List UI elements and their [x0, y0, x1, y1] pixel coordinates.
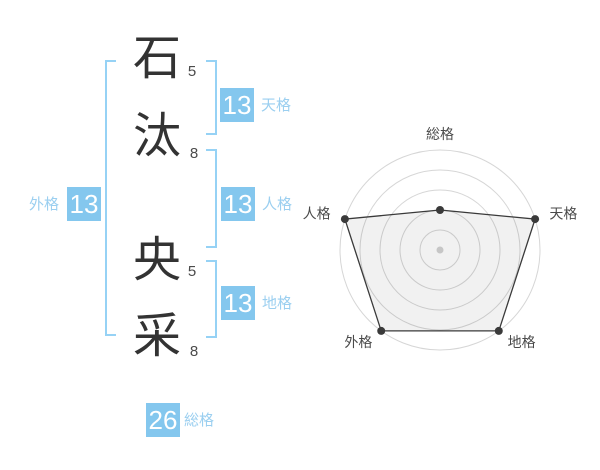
radar-chart: 総格天格地格外格人格: [290, 95, 600, 385]
name-char-1: 石: [131, 35, 183, 83]
gaikaku-bracket: [105, 60, 116, 336]
radar-data-point: [436, 206, 444, 214]
chikaku-bracket: [206, 260, 217, 338]
radar-axis-label: 総格: [426, 126, 454, 142]
jinkaku-label: 人格: [262, 197, 292, 212]
radar-axis-label: 地格: [508, 334, 536, 350]
radar-data-point: [341, 215, 349, 223]
radar-data-point: [495, 327, 503, 335]
name-char-2: 汰: [131, 113, 183, 161]
tenkaku-value-badge: 13: [220, 88, 254, 122]
soukaku-value-badge: 26: [146, 403, 180, 437]
stroke-count-2: 8: [187, 146, 201, 161]
name-analysis-panel: 石 汰 央 采 5 8 5 8 13 天格 13 人格 13 地格 外格 13 …: [0, 0, 600, 470]
stroke-count-1: 5: [185, 64, 199, 79]
radar-center-dot: [437, 247, 444, 254]
stroke-count-4: 8: [187, 344, 201, 359]
radar-axis-label: 外格: [344, 334, 372, 350]
radar-data-polygon: [345, 210, 535, 331]
stroke-count-3: 5: [185, 264, 199, 279]
gaikaku-label: 外格: [29, 197, 59, 212]
name-char-3: 央: [131, 237, 183, 285]
tenkaku-label: 天格: [261, 98, 291, 113]
gaikaku-value-badge: 13: [67, 187, 101, 221]
jinkaku-bracket: [206, 149, 217, 248]
radar-data-point: [377, 327, 385, 335]
radar-axis-label: 人格: [303, 206, 331, 222]
jinkaku-value-badge: 13: [221, 187, 255, 221]
soukaku-label: 総格: [184, 413, 214, 428]
name-char-4: 采: [131, 313, 183, 361]
chikaku-value-badge: 13: [221, 286, 255, 320]
tenkaku-bracket: [206, 60, 217, 135]
radar-data-point: [531, 215, 539, 223]
radar-axis-label: 天格: [549, 206, 577, 222]
chikaku-label: 地格: [262, 296, 292, 311]
